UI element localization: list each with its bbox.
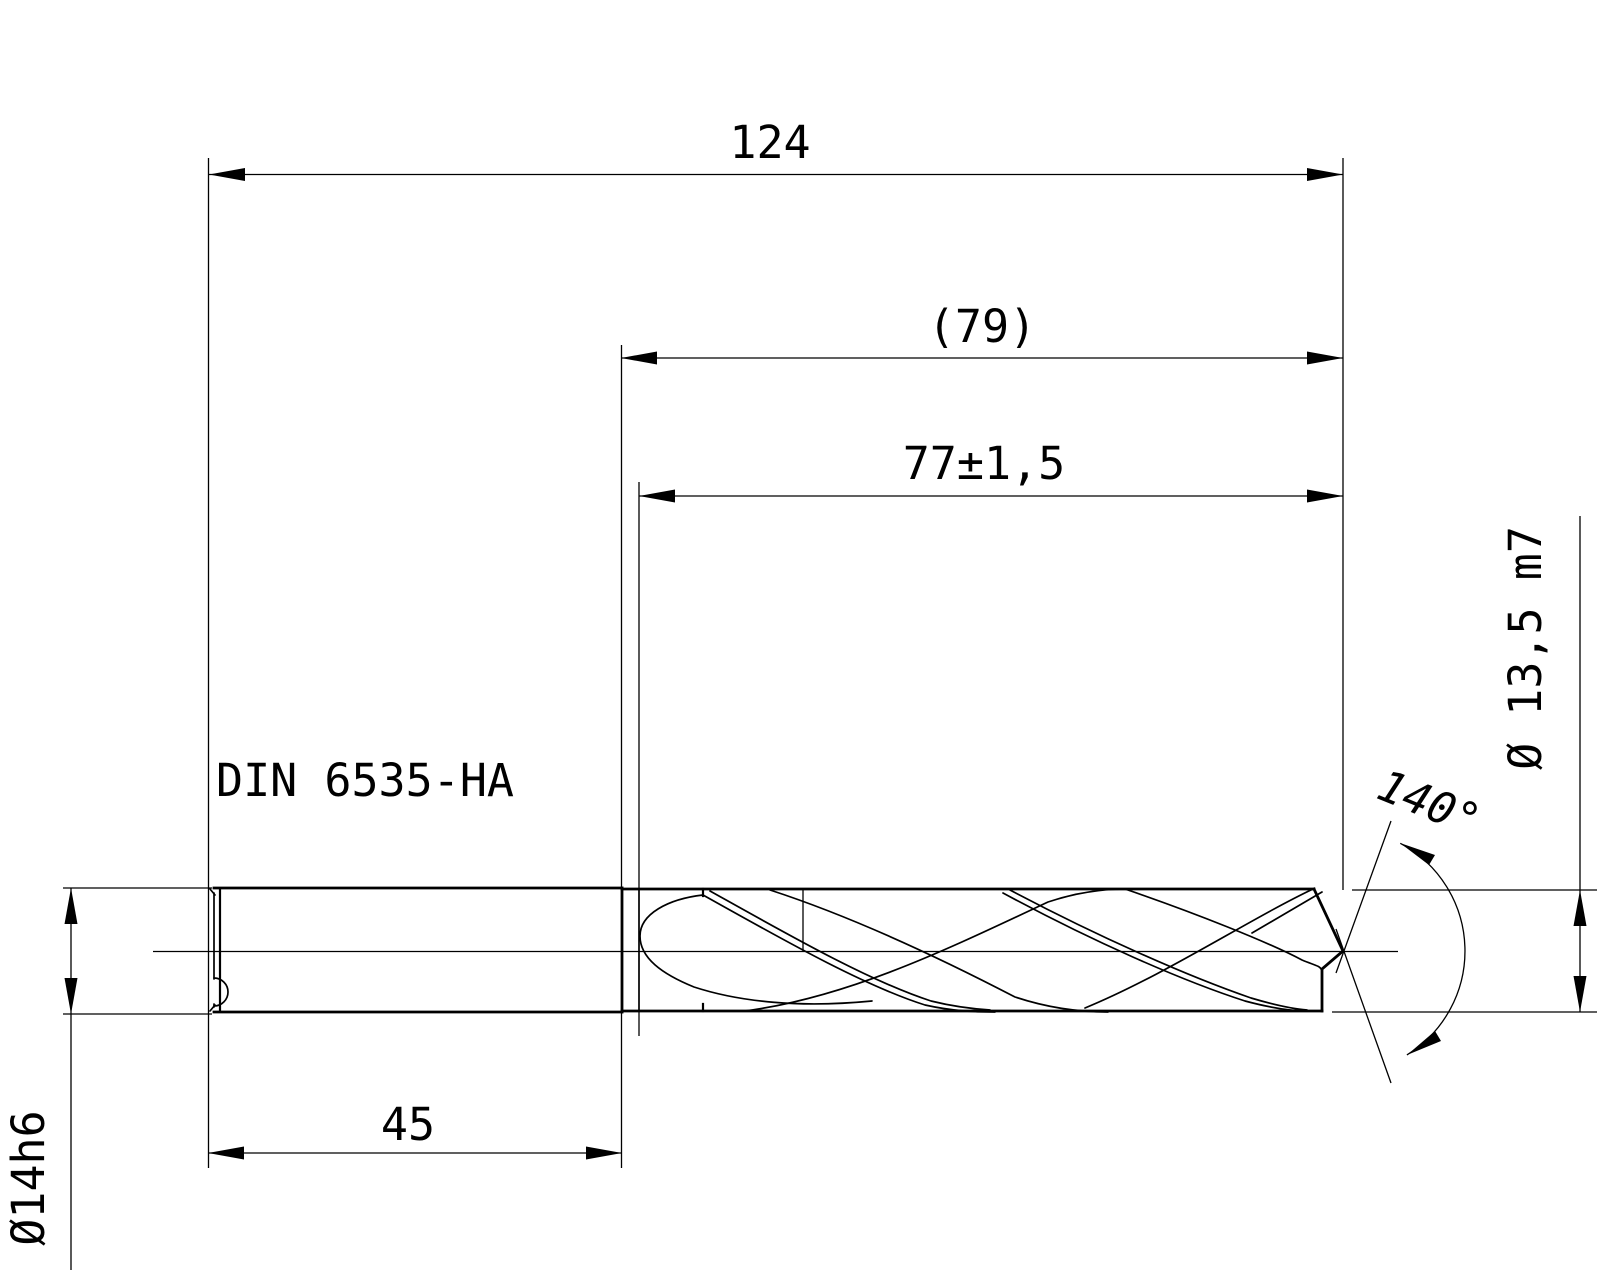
angle-arc bbox=[1400, 843, 1465, 1055]
shank-diameter-label: Ø14h6 bbox=[2, 1110, 55, 1245]
arrowhead-right bbox=[1307, 490, 1343, 503]
cutting-diameter-label: Ø 13,5 m7 bbox=[1499, 526, 1552, 770]
shank-standard-label: DIN 6535-HA bbox=[216, 754, 514, 807]
point-faces bbox=[1314, 889, 1343, 1011]
arrowhead-right bbox=[1307, 168, 1343, 181]
shank-length-label: 45 bbox=[381, 1098, 435, 1151]
arrowhead-down bbox=[1574, 976, 1587, 1012]
arrowhead-up bbox=[65, 888, 78, 924]
drawing-canvas: 124 (79) 77±1,5 45 Ø14h6 Ø 13,5 m7 bbox=[0, 0, 1600, 1280]
arrowhead-left bbox=[209, 168, 245, 181]
arrowhead-left bbox=[208, 1147, 244, 1160]
arrowhead-bottom bbox=[1407, 1031, 1441, 1055]
drill-shank-outline bbox=[210, 888, 622, 1012]
arrowhead-top bbox=[1400, 843, 1435, 865]
flute-spiral-curves bbox=[640, 889, 1321, 1012]
arrowhead-right bbox=[1307, 352, 1343, 365]
dimension-shank-length: 45 bbox=[208, 1098, 622, 1160]
dimension-overall-length: 124 bbox=[209, 116, 1343, 181]
dimension-point-angle: 140° bbox=[1336, 760, 1488, 1083]
arrowhead-left bbox=[621, 352, 657, 365]
shank-plus-flute-label: (79) bbox=[928, 300, 1036, 353]
drill-flute-section bbox=[622, 889, 1322, 1012]
dimension-cutting-diameter: Ø 13,5 m7 bbox=[1499, 516, 1587, 1012]
point-angle-label: 140° bbox=[1370, 760, 1487, 847]
flute-length-label: 77±1,5 bbox=[903, 437, 1066, 490]
arrowhead-up bbox=[1574, 890, 1587, 926]
drill-technical-drawing: 124 (79) 77±1,5 45 Ø14h6 Ø 13,5 m7 bbox=[0, 0, 1600, 1280]
overall-length-label: 124 bbox=[729, 116, 810, 169]
dimension-shank-diameter: Ø14h6 bbox=[2, 888, 78, 1270]
arrowhead-down bbox=[65, 978, 78, 1014]
arrowhead-right bbox=[586, 1147, 622, 1160]
point-lip-line bbox=[1252, 892, 1322, 933]
dimension-flute-length: 77±1,5 bbox=[639, 437, 1343, 503]
shank-standard-note: DIN 6535-HA bbox=[216, 754, 514, 807]
arrowhead-left bbox=[639, 490, 675, 503]
dimension-shank-plus-flute: (79) bbox=[621, 300, 1343, 365]
drill-point bbox=[1252, 889, 1343, 1011]
